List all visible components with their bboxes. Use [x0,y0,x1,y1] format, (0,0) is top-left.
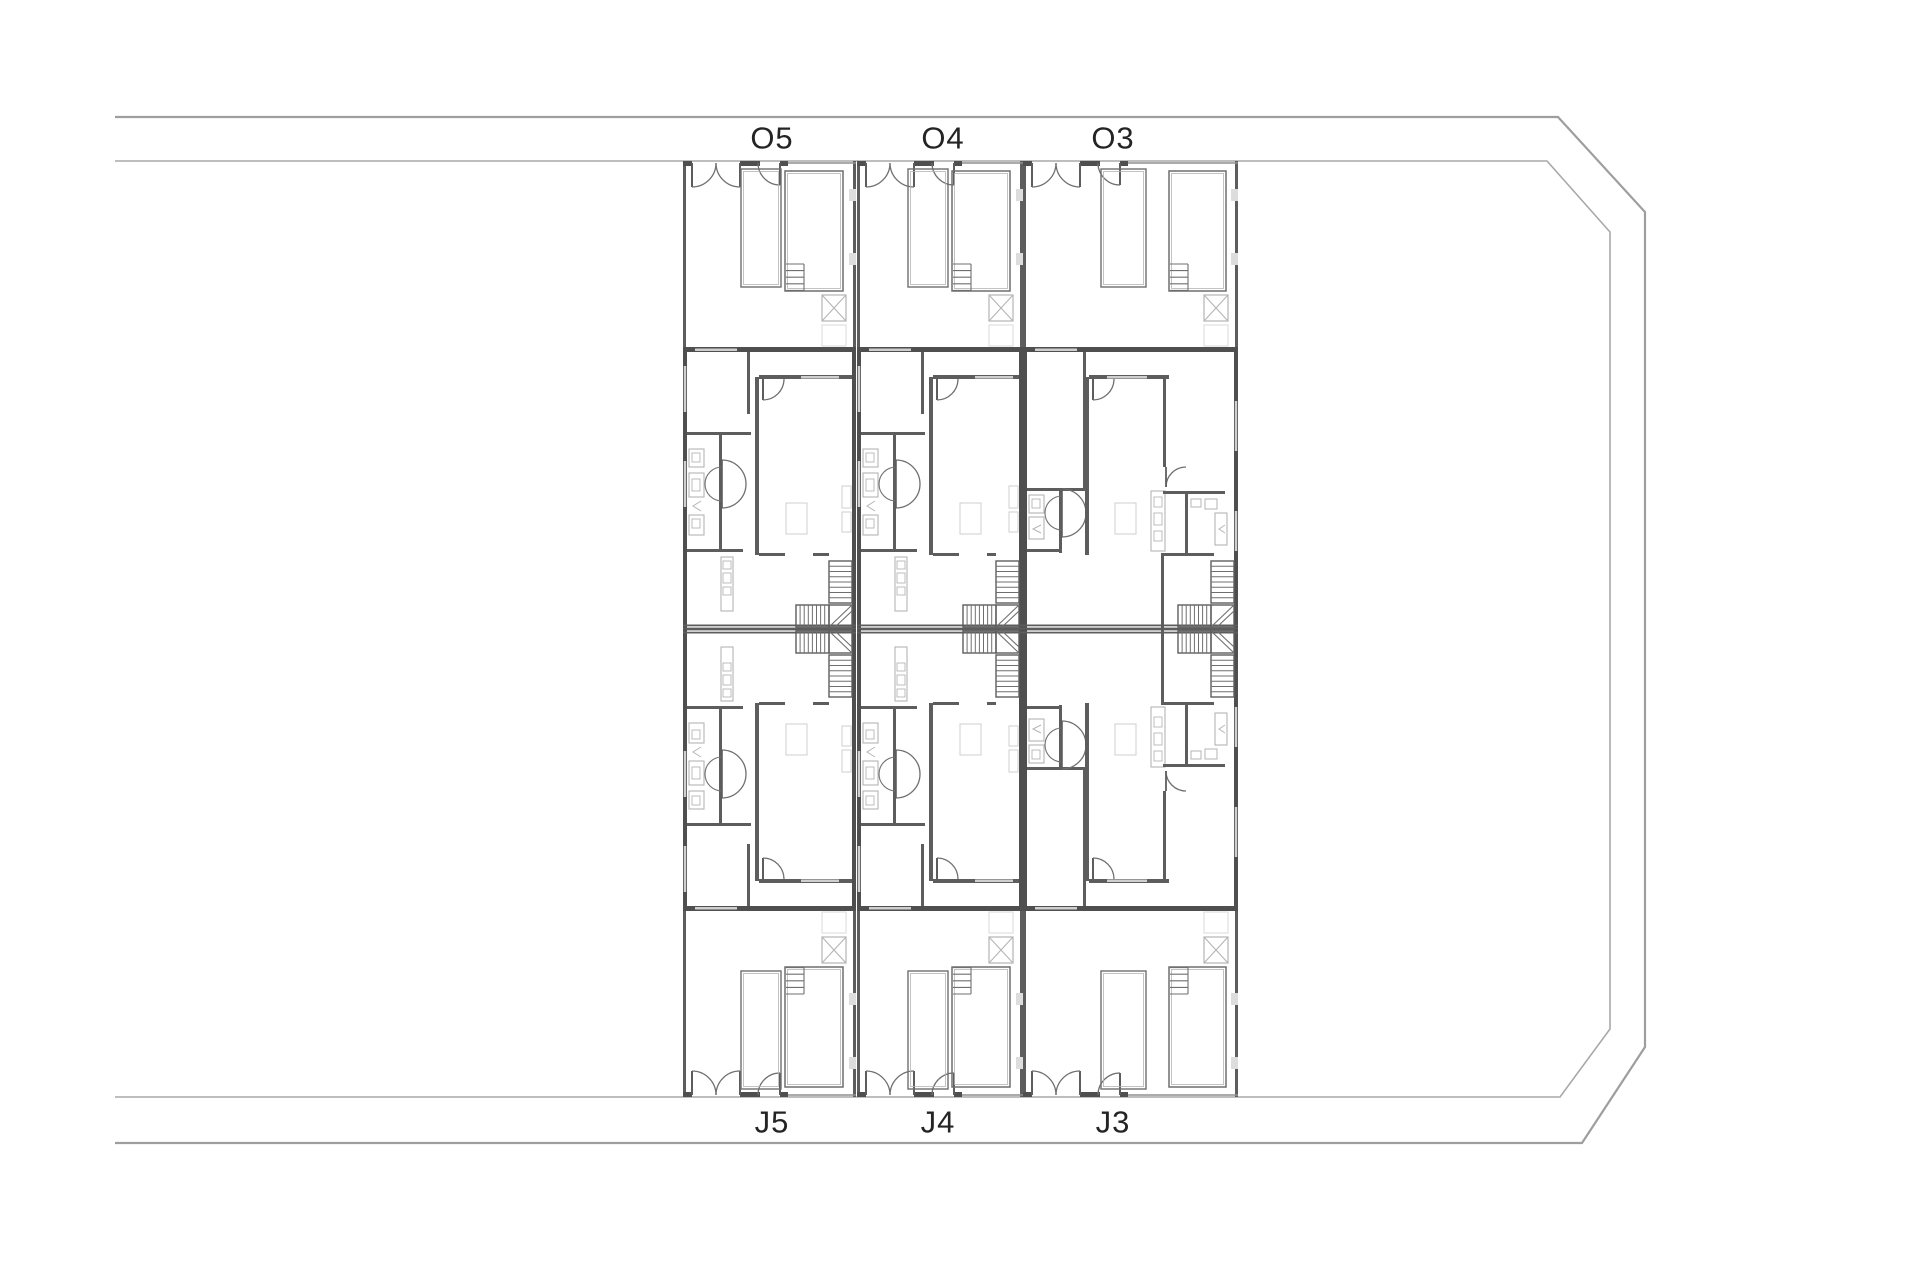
unit-J4-plan [857,628,1023,1097]
unit-J3-plan [1023,628,1238,1097]
unit-label-J5: J5 [755,1105,790,1140]
unit-label-J4: J4 [921,1105,956,1140]
unit-label-O5: O5 [750,121,793,156]
unit-label-O3: O3 [1091,121,1134,156]
unit-label-J3: J3 [1096,1105,1131,1140]
unit-O4-plan [857,161,1023,630]
unit-J5-plan [683,628,856,1097]
floor-plan-canvas: O5O4O3J5J4J3 [0,0,1920,1280]
unit-O3-plan [1023,161,1238,630]
unit-label-O4: O4 [921,121,964,156]
unit-O5-plan [683,161,856,630]
floor-plan-drawing: O5O4O3J5J4J3 [0,0,1920,1280]
